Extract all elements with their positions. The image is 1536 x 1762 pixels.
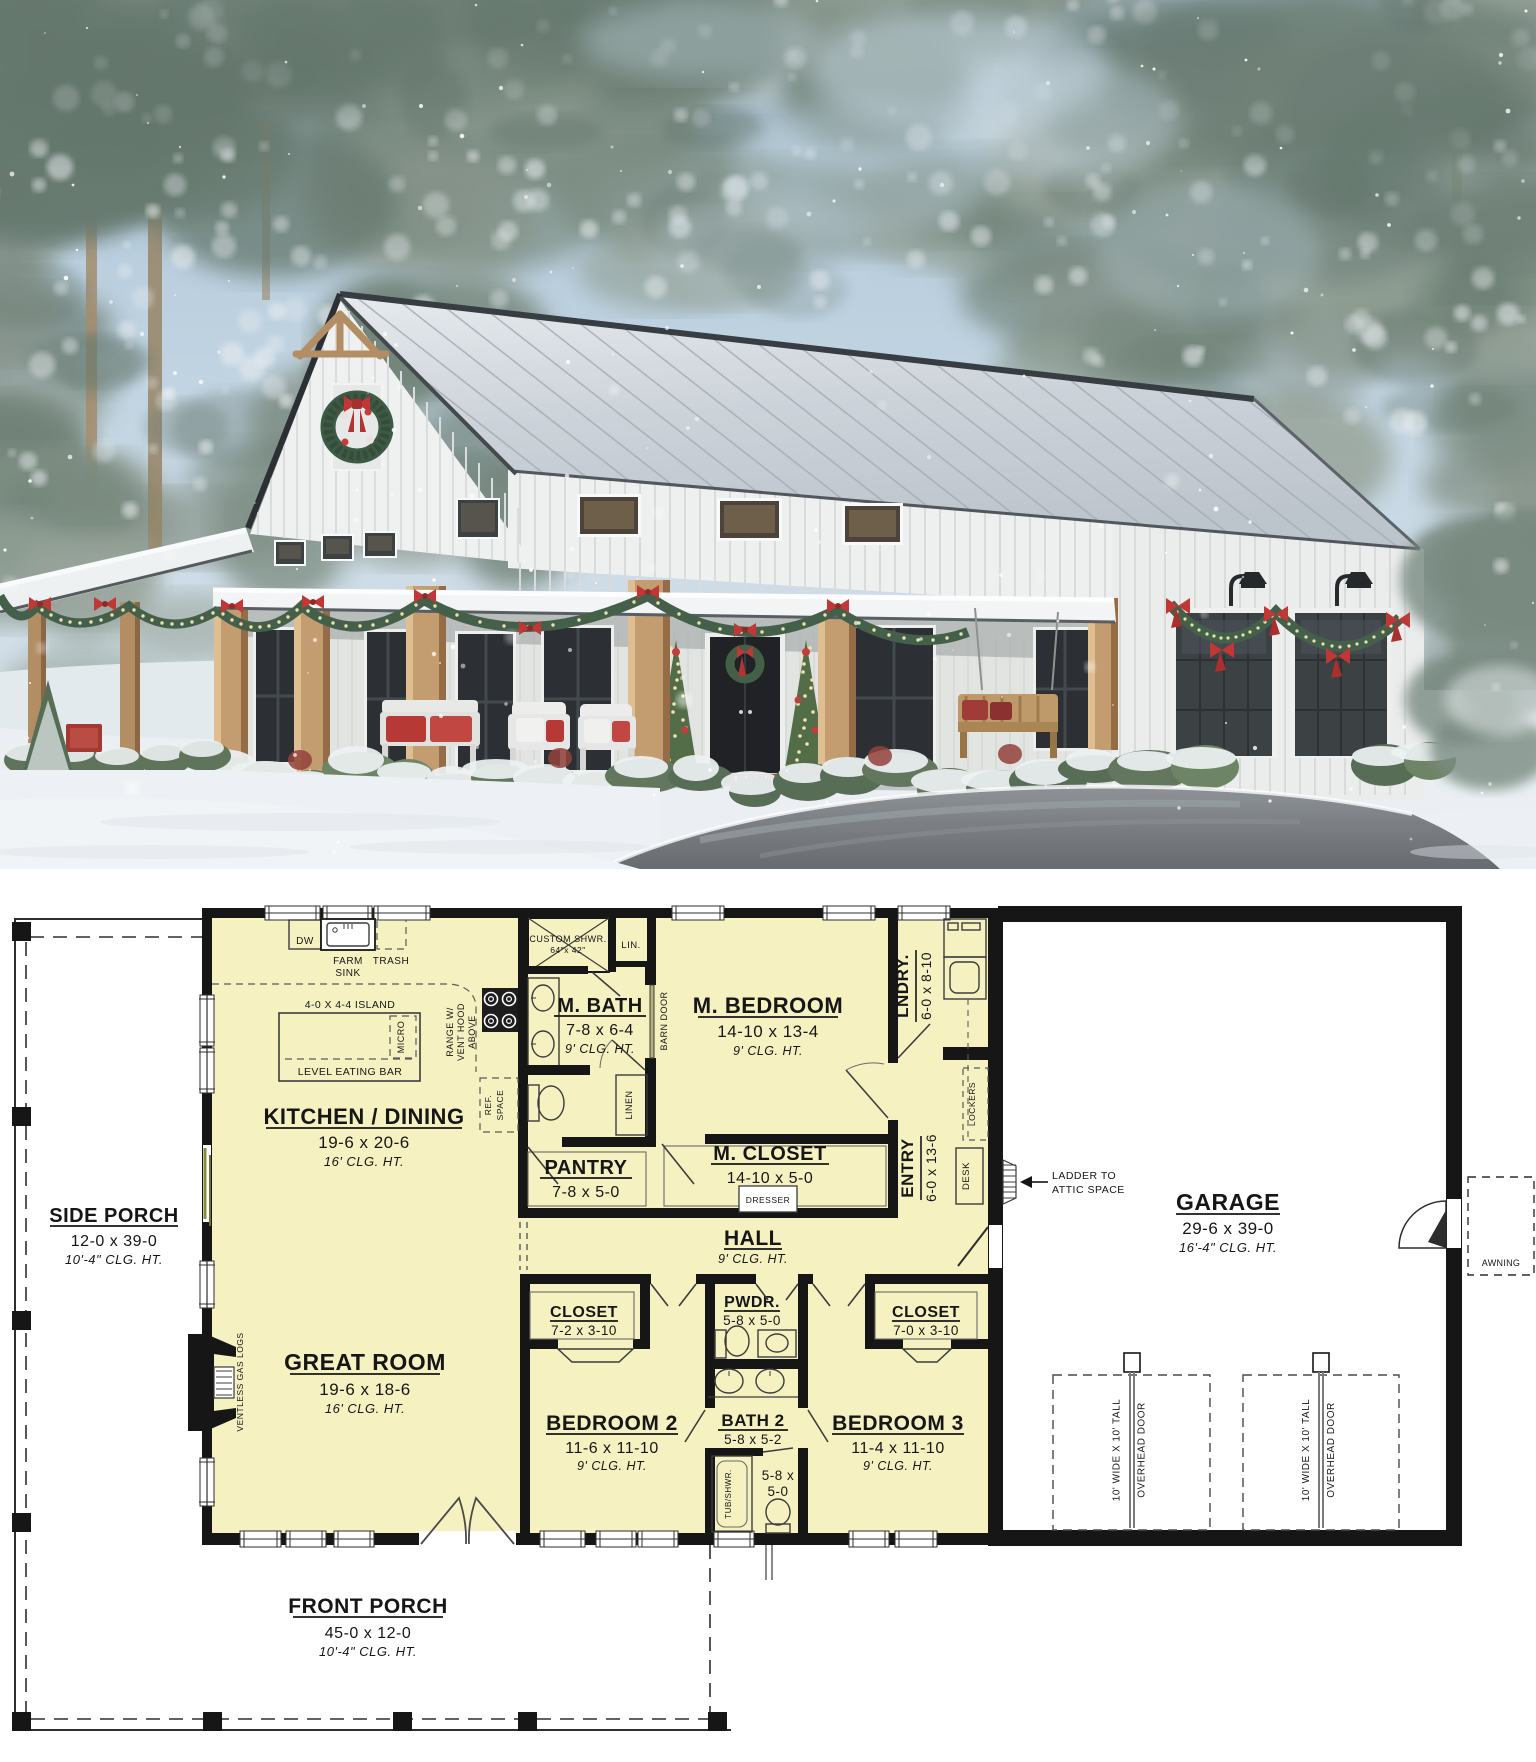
svg-text:14-10 x 13-4: 14-10 x 13-4	[717, 1022, 818, 1041]
svg-text:OVERHEAD DOOR: OVERHEAD DOOR	[1137, 1402, 1148, 1497]
svg-text:KITCHEN / DINING: KITCHEN / DINING	[263, 1104, 464, 1129]
svg-text:64"x 42": 64"x 42"	[550, 945, 586, 955]
svg-text:REF.: REF.	[483, 1095, 493, 1115]
svg-text:CLOSET: CLOSET	[550, 1304, 618, 1321]
svg-text:6-0 x 13-6: 6-0 x 13-6	[923, 1134, 939, 1202]
svg-text:BEDROOM 3: BEDROOM 3	[832, 1412, 964, 1435]
svg-text:14-10 x 5-0: 14-10 x 5-0	[727, 1170, 813, 1187]
svg-text:16' CLG. HT.: 16' CLG. HT.	[324, 1154, 404, 1169]
svg-text:9' CLG. HT.: 9' CLG. HT.	[863, 1459, 933, 1473]
svg-text:M. BEDROOM: M. BEDROOM	[693, 993, 843, 1018]
svg-text:TRASH: TRASH	[373, 956, 409, 967]
svg-text:5-0: 5-0	[767, 1484, 788, 1499]
svg-text:7-0 x 3-10: 7-0 x 3-10	[893, 1323, 959, 1338]
svg-text:CLOSET: CLOSET	[892, 1304, 960, 1321]
svg-text:AWNING: AWNING	[1482, 1258, 1520, 1268]
svg-text:HALL: HALL	[724, 1227, 782, 1250]
svg-text:45-0 x 12-0: 45-0 x 12-0	[325, 1625, 411, 1642]
svg-text:ATTIC SPACE: ATTIC SPACE	[1052, 1184, 1125, 1196]
svg-text:FARM: FARM	[333, 956, 363, 967]
svg-text:DW: DW	[296, 936, 314, 947]
svg-text:10' WIDE X 10' TALL: 10' WIDE X 10' TALL	[1112, 1399, 1123, 1501]
svg-text:9' CLG. HT.: 9' CLG. HT.	[718, 1252, 788, 1266]
svg-text:6-0 x 8-10: 6-0 x 8-10	[918, 952, 934, 1020]
svg-text:ENTRY: ENTRY	[898, 1138, 917, 1198]
svg-text:7-8 x 6-4: 7-8 x 6-4	[566, 1022, 634, 1039]
svg-text:VENT HOOD: VENT HOOD	[456, 1003, 466, 1061]
svg-text:16' CLG. HT.: 16' CLG. HT.	[325, 1401, 405, 1416]
svg-text:LNDRY.: LNDRY.	[893, 954, 912, 1018]
svg-text:4-0 X 4-4 ISLAND: 4-0 X 4-4 ISLAND	[305, 999, 395, 1011]
svg-text:ABOVE: ABOVE	[467, 1015, 477, 1049]
svg-text:M. CLOSET: M. CLOSET	[713, 1143, 826, 1165]
svg-text:RANGE W/: RANGE W/	[445, 1007, 455, 1057]
svg-text:11-4 x 11-10: 11-4 x 11-10	[851, 1440, 944, 1457]
svg-text:11-6 x 11-10: 11-6 x 11-10	[565, 1440, 658, 1457]
svg-text:5-8 x 5-2: 5-8 x 5-2	[724, 1432, 782, 1447]
svg-text:LADDER TO: LADDER TO	[1052, 1170, 1116, 1182]
svg-text:SIDE PORCH: SIDE PORCH	[49, 1205, 178, 1227]
svg-text:GREAT ROOM: GREAT ROOM	[284, 1349, 446, 1375]
svg-text:VENTLESS GAS LOGS: VENTLESS GAS LOGS	[235, 1332, 245, 1431]
svg-text:MICRO: MICRO	[396, 1021, 406, 1054]
svg-text:10'-4" CLG. HT.: 10'-4" CLG. HT.	[319, 1644, 417, 1659]
svg-text:9' CLG. HT.: 9' CLG. HT.	[565, 1042, 635, 1056]
svg-text:OVERHEAD DOOR: OVERHEAD DOOR	[1326, 1402, 1337, 1497]
svg-text:7-8 x 5-0: 7-8 x 5-0	[552, 1184, 620, 1201]
svg-text:DRESSER: DRESSER	[746, 1195, 791, 1205]
svg-text:DESK: DESK	[961, 1162, 972, 1190]
svg-text:TUB/SHWR.: TUB/SHWR.	[724, 1469, 733, 1518]
svg-text:9' CLG. HT.: 9' CLG. HT.	[577, 1459, 647, 1473]
svg-text:BATH 2: BATH 2	[721, 1411, 784, 1430]
svg-text:SPACE: SPACE	[495, 1090, 505, 1121]
svg-text:16'-4" CLG. HT.: 16'-4" CLG. HT.	[1179, 1240, 1277, 1255]
svg-text:10'-4" CLG. HT.: 10'-4" CLG. HT.	[65, 1252, 163, 1267]
svg-text:LEVEL EATING BAR: LEVEL EATING BAR	[298, 1066, 402, 1078]
svg-text:5-8 x 5-0: 5-8 x 5-0	[723, 1313, 781, 1328]
svg-text:19-6 x 20-6: 19-6 x 20-6	[318, 1133, 410, 1152]
svg-text:CUSTOM SHWR.: CUSTOM SHWR.	[529, 934, 606, 944]
svg-text:BEDROOM 2: BEDROOM 2	[546, 1412, 678, 1435]
svg-text:PANTRY: PANTRY	[545, 1157, 628, 1179]
svg-text:LOCKERS: LOCKERS	[967, 1082, 977, 1126]
svg-text:M. BATH: M. BATH	[557, 995, 642, 1017]
svg-text:5-8 x: 5-8 x	[762, 1468, 795, 1483]
svg-text:10' WIDE X 10' TALL: 10' WIDE X 10' TALL	[1301, 1399, 1312, 1501]
svg-text:29-6 x 39-0: 29-6 x 39-0	[1182, 1219, 1274, 1238]
svg-text:LIN.: LIN.	[621, 940, 640, 951]
svg-text:BARN DOOR: BARN DOOR	[659, 991, 669, 1050]
svg-text:9' CLG. HT.: 9' CLG. HT.	[733, 1044, 803, 1058]
svg-text:7-2 x 3-10: 7-2 x 3-10	[551, 1323, 617, 1338]
svg-text:12-0 x 39-0: 12-0 x 39-0	[71, 1233, 157, 1250]
svg-text:SINK: SINK	[335, 968, 360, 979]
svg-text:PWDR.: PWDR.	[724, 1294, 780, 1311]
svg-text:FRONT PORCH: FRONT PORCH	[288, 1595, 448, 1618]
svg-text:19-6 x 18-6: 19-6 x 18-6	[319, 1380, 411, 1399]
svg-text:GARAGE: GARAGE	[1176, 1189, 1280, 1215]
svg-text:LINEN: LINEN	[624, 1090, 634, 1119]
